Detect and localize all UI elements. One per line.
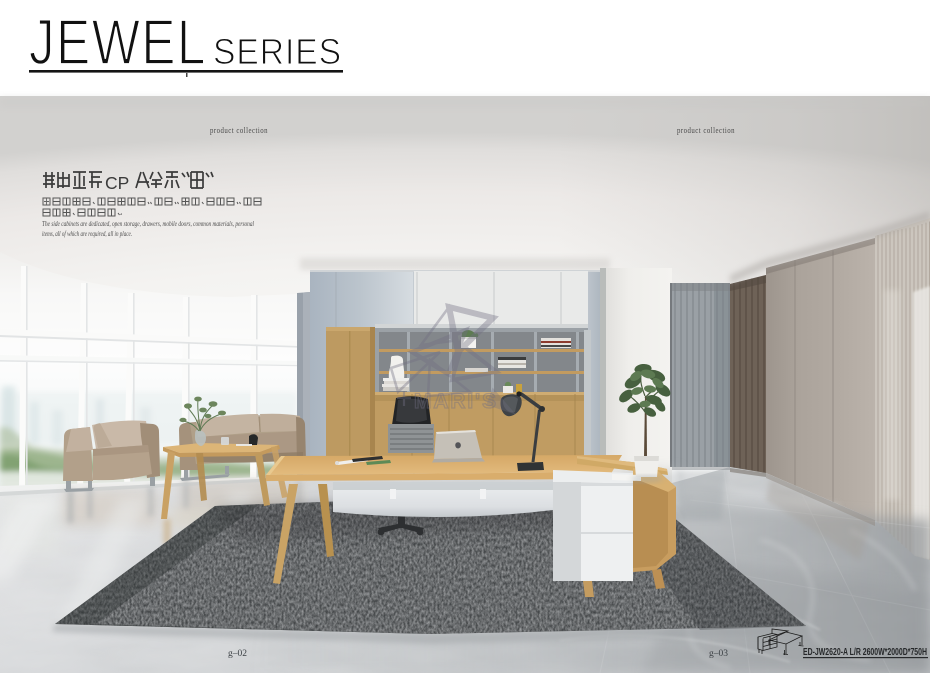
- svg-text:g–03: g–03: [709, 649, 728, 659]
- svg-text:The side cabinets are dedicate: The side cabinets are dedicated, open st…: [42, 219, 254, 228]
- svg-text:product collection: product collection: [210, 125, 268, 135]
- svg-text:MARI'S: MARI'S: [414, 390, 498, 413]
- svg-text:g–02: g–02: [228, 649, 247, 659]
- svg-text:JEWEL: JEWEL: [29, 6, 207, 78]
- svg-text:CP: CP: [105, 173, 129, 193]
- svg-text:SERIES: SERIES: [213, 31, 342, 72]
- svg-text:ED-JW2620-A L/R 2600W*2000D*75: ED-JW2620-A L/R 2600W*2000D*750H: [803, 646, 927, 658]
- svg-text:product collection: product collection: [677, 125, 735, 135]
- svg-text:items, all of which are requir: items, all of which are required, all in…: [42, 229, 132, 238]
